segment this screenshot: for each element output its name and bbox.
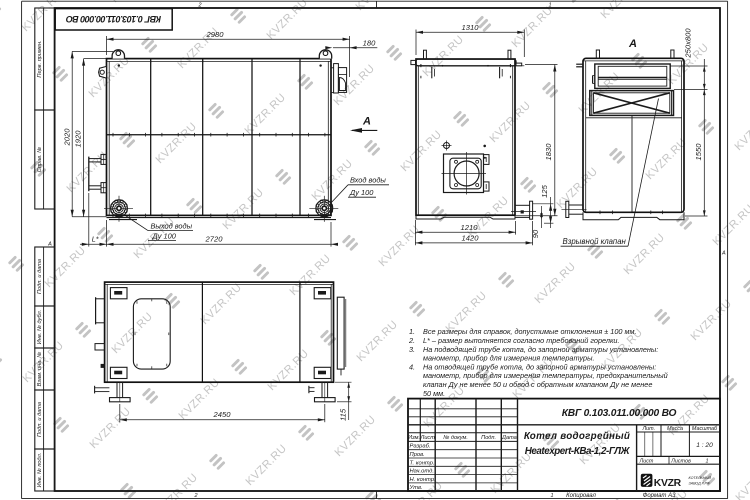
svg-text:50 мм.: 50 мм. bbox=[423, 389, 445, 398]
svg-text:3.: 3. bbox=[409, 345, 415, 354]
svg-text:2980: 2980 bbox=[206, 30, 225, 39]
svg-text:Все размеры для справок, допус: Все размеры для справок, допустимые откл… bbox=[423, 327, 637, 336]
svg-text:Т. контр.: Т. контр. bbox=[410, 460, 435, 466]
svg-text:Лит.: Лит. bbox=[641, 426, 655, 432]
svg-text:1830: 1830 bbox=[544, 143, 553, 161]
svg-text:4.: 4. bbox=[409, 362, 415, 371]
svg-text:2: 2 bbox=[193, 493, 197, 499]
svg-text:Формат А3: Формат А3 bbox=[643, 493, 676, 499]
svg-text:А: А bbox=[721, 251, 726, 257]
svg-text:1210: 1210 bbox=[461, 223, 479, 232]
svg-text:На отводящей трубе котла, до з: На отводящей трубе котла, до запорной ар… bbox=[423, 362, 656, 371]
svg-text:Н. контр.: Н. контр. bbox=[410, 477, 436, 483]
svg-text:№ докум.: № докум. bbox=[443, 435, 468, 441]
svg-text:2: 2 bbox=[197, 3, 201, 9]
svg-text:Пров.: Пров. bbox=[410, 452, 425, 458]
svg-text:Вход воды: Вход воды bbox=[350, 175, 386, 184]
svg-text:Копировал: Копировал bbox=[566, 493, 596, 499]
svg-text:КВГ 0.103.011.00.000 ВО: КВГ 0.103.011.00.000 ВО bbox=[562, 408, 677, 419]
svg-text:Ду 100: Ду 100 bbox=[152, 232, 177, 241]
svg-text:2450: 2450 bbox=[213, 410, 232, 419]
svg-text:КВГ 0.103.011.00.000 ВО: КВГ 0.103.011.00.000 ВО bbox=[66, 14, 161, 24]
svg-text:L*: L* bbox=[92, 235, 99, 244]
svg-text:Перв. примен.: Перв. примен. bbox=[37, 40, 43, 77]
svg-text:1.: 1. bbox=[409, 327, 415, 336]
svg-text:А: А bbox=[362, 116, 371, 128]
svg-text:Масса: Масса bbox=[667, 426, 683, 432]
svg-text:Изм.: Изм. bbox=[408, 435, 420, 441]
svg-text:1310: 1310 bbox=[462, 23, 480, 32]
svg-text:Лист: Лист bbox=[639, 458, 654, 464]
svg-text:Нач.отд.: Нач.отд. bbox=[410, 469, 434, 475]
svg-text:А: А bbox=[628, 38, 637, 50]
svg-text:Масштаб: Масштаб bbox=[692, 426, 718, 432]
svg-text:Дата: Дата bbox=[501, 435, 517, 441]
svg-text:Инв. № подл.: Инв. № подл. bbox=[37, 453, 43, 488]
svg-text:2720: 2720 bbox=[205, 235, 224, 244]
svg-text:клапан Ду не менее 50 и обвод: клапан Ду не менее 50 и обвод с обратным… bbox=[423, 380, 652, 389]
svg-text:Подп.: Подп. bbox=[481, 435, 496, 441]
svg-text:1: 1 bbox=[550, 493, 553, 499]
svg-text:КОТЕЛЬНЫЙ: КОТЕЛЬНЫЙ bbox=[689, 476, 712, 480]
svg-text:250x800: 250x800 bbox=[683, 28, 692, 59]
svg-text:Heatexpert-КВа-1,2-ГЛЖ: Heatexpert-КВа-1,2-ГЛЖ bbox=[525, 446, 631, 457]
svg-text:Инв. № дубл.: Инв. № дубл. bbox=[37, 310, 43, 344]
svg-text:Подп. и дата: Подп. и дата bbox=[37, 259, 43, 294]
svg-text:ЗАВОД Р.РФ: ЗАВОД Р.РФ bbox=[689, 481, 710, 485]
svg-text:180: 180 bbox=[363, 38, 376, 47]
svg-text:125: 125 bbox=[540, 184, 549, 197]
svg-text:Выход воды: Выход воды bbox=[151, 222, 193, 231]
svg-text:Разраб.: Разраб. bbox=[410, 444, 431, 450]
svg-text:Ду 100: Ду 100 bbox=[349, 188, 374, 197]
svg-text:Подп. и дата: Подп. и дата bbox=[37, 402, 43, 437]
svg-text:115: 115 bbox=[338, 408, 347, 421]
svg-text:Утв.: Утв. bbox=[409, 485, 423, 491]
svg-text:Справ. №: Справ. № bbox=[37, 147, 43, 172]
svg-text:Взам. инв. №: Взам. инв. № bbox=[37, 352, 43, 387]
svg-text:манометр, прибор для измерения: манометр, прибор для измерения температу… bbox=[423, 371, 668, 380]
svg-text:2.: 2. bbox=[408, 336, 415, 345]
svg-text:На подводящей трубе котла, до: На подводящей трубе котла, до запорной а… bbox=[423, 345, 658, 354]
svg-text:1: 1 bbox=[706, 458, 709, 464]
svg-text:1420: 1420 bbox=[462, 234, 480, 243]
svg-text:Взрывной клапан: Взрывной клапан bbox=[563, 237, 627, 246]
svg-text:1920: 1920 bbox=[74, 130, 83, 148]
svg-text:1 : 20: 1 : 20 bbox=[696, 442, 713, 449]
svg-text:Лист: Лист bbox=[419, 435, 435, 441]
svg-text:2020: 2020 bbox=[62, 128, 71, 147]
svg-text:манометр, прибор для измерения: манометр, прибор для измерения температу… bbox=[423, 354, 595, 363]
svg-text:Листов: Листов bbox=[670, 458, 691, 464]
svg-text:Котел водогрейный: Котел водогрейный bbox=[524, 431, 630, 442]
svg-text:KVZR: KVZR bbox=[654, 478, 682, 489]
svg-text:1: 1 bbox=[548, 3, 551, 9]
svg-text:L* – размер выполняется соглас: L* – размер выполняется согласно требова… bbox=[423, 336, 619, 345]
svg-text:1550: 1550 bbox=[694, 143, 703, 161]
